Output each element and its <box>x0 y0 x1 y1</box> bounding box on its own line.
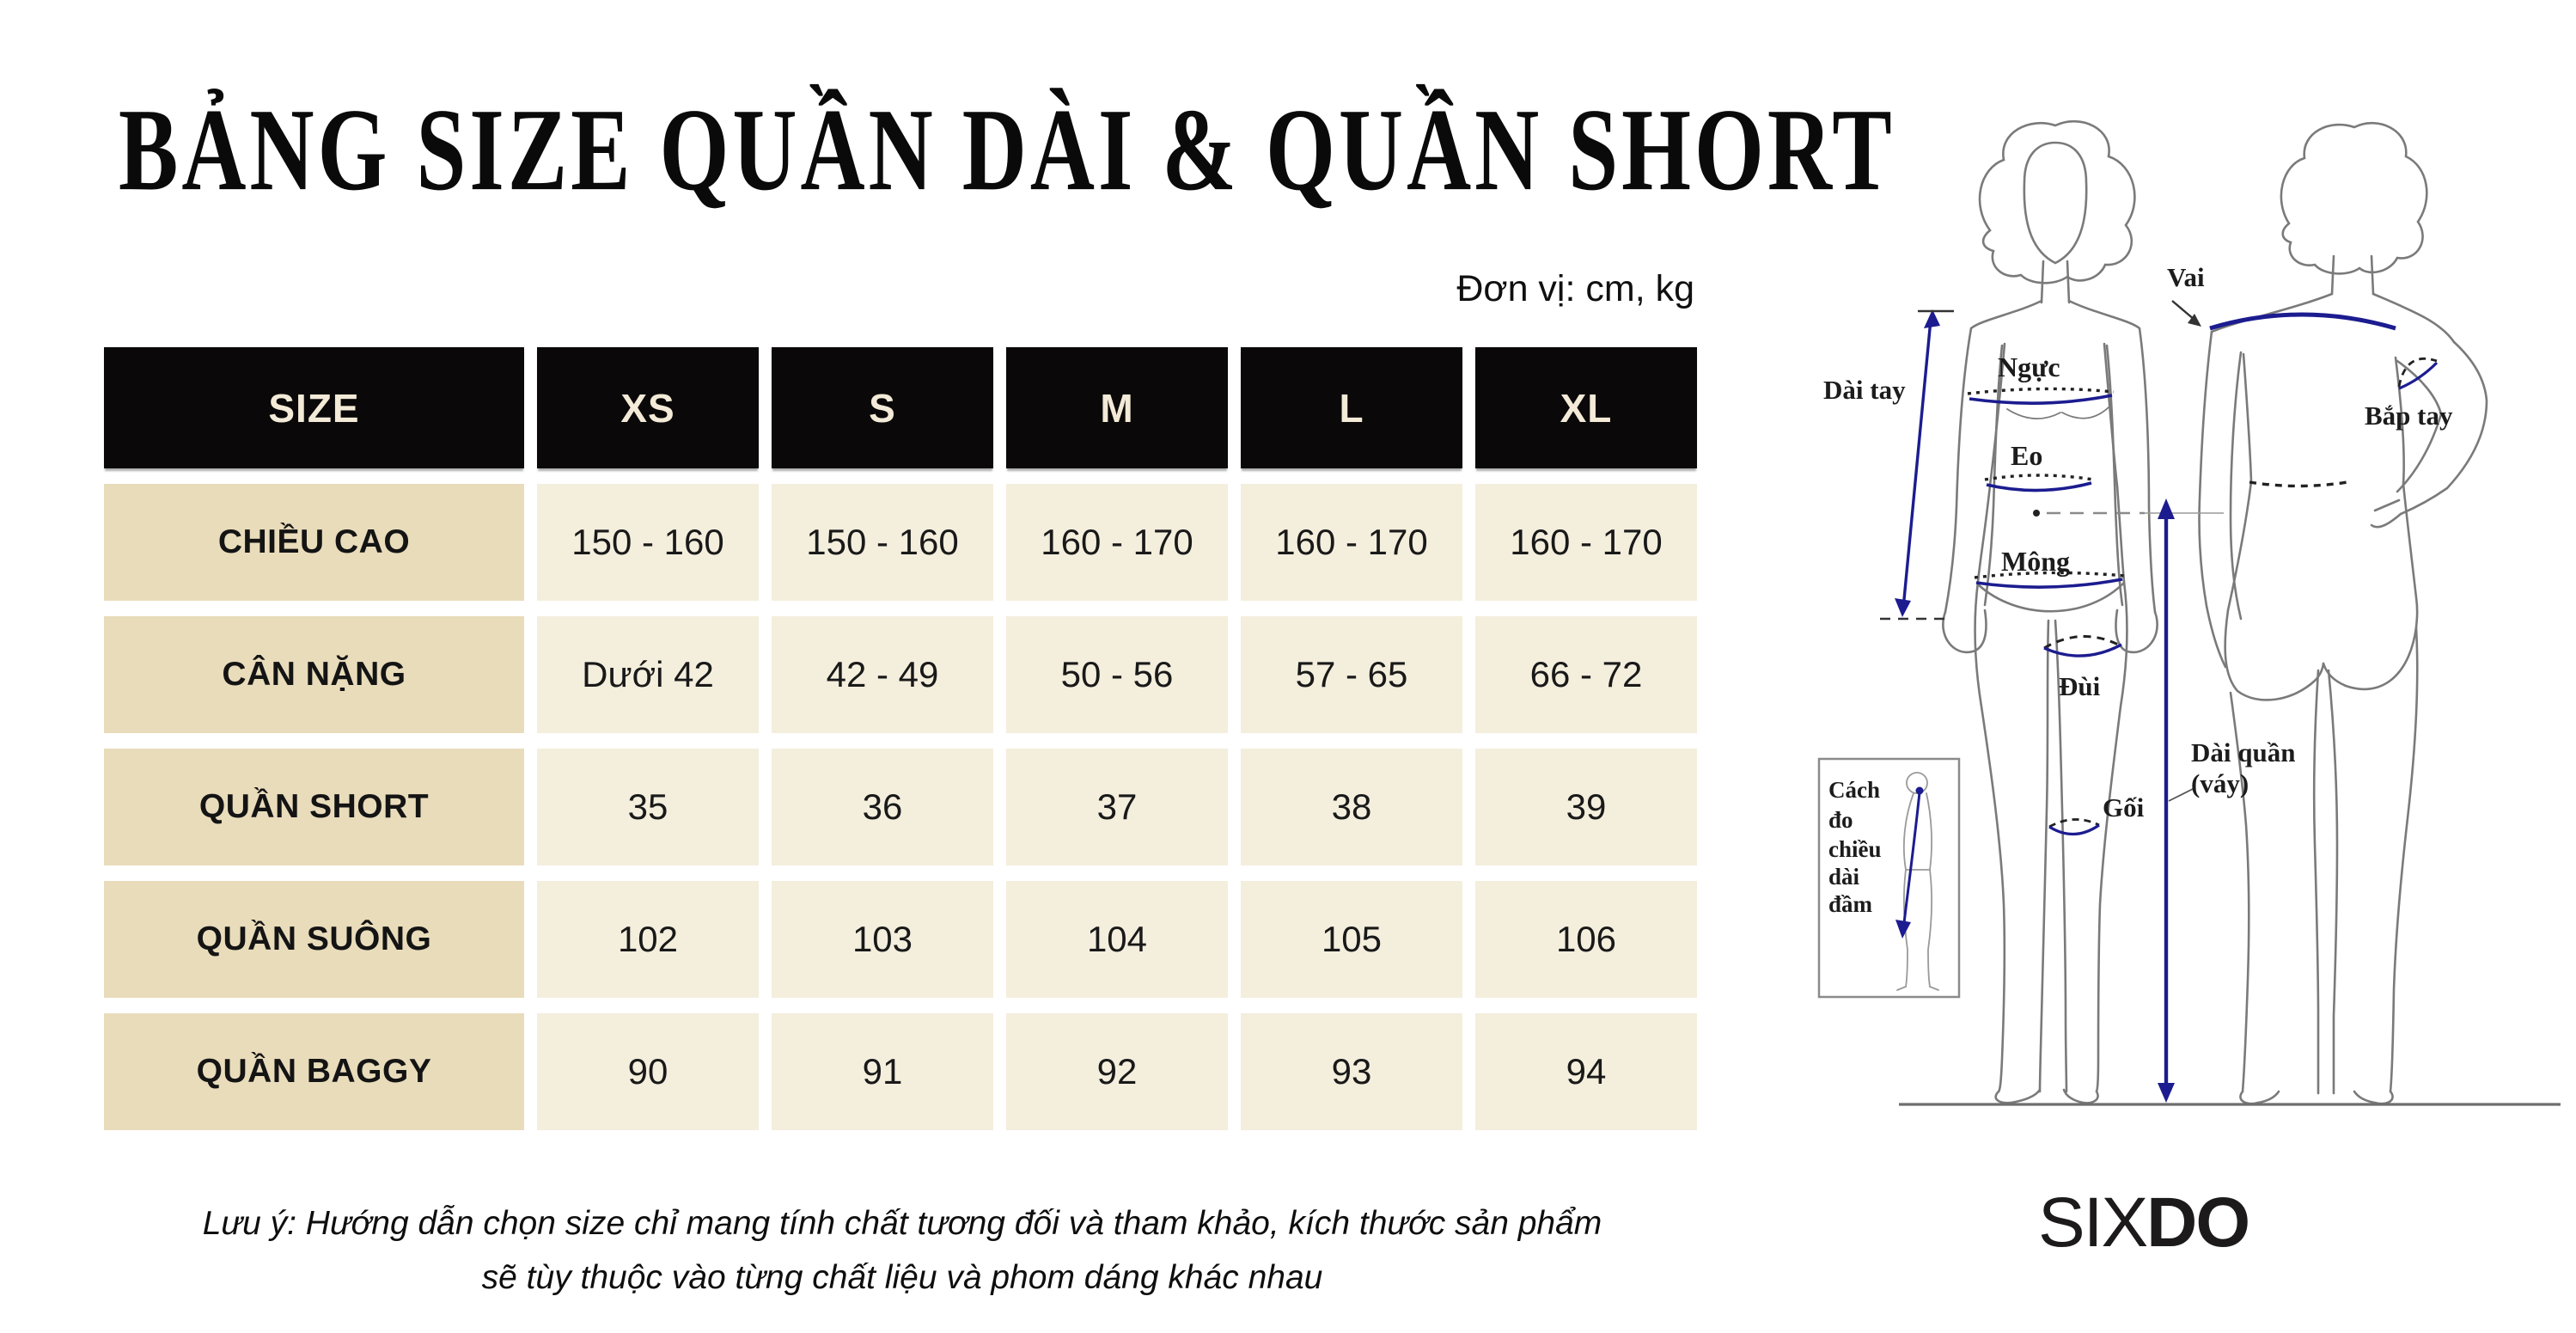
brand-logo-six: SIX <box>2038 1183 2146 1262</box>
size-table-value-cell: 35 <box>537 749 759 865</box>
size-table-header-col: L <box>1241 347 1462 468</box>
size-table-value-cell: 160 - 170 <box>1006 484 1228 601</box>
measurement-diagram: Cách đo chiều dài đầm Vai Dài tay Ngực E… <box>1760 103 2576 1268</box>
size-chart-page: BẢNG SIZE QUẦN DÀI & QUẦN SHORT Đơn vị: … <box>0 0 2576 1333</box>
footnote-line1: Lưu ý: Hướng dẫn chọn size chỉ mang tính… <box>129 1196 1676 1250</box>
size-table-value-cell: 160 - 170 <box>1241 484 1462 601</box>
size-table-value-cell: 39 <box>1475 749 1697 865</box>
front-figure-outline <box>1943 121 2157 1103</box>
size-table-value-cell: 90 <box>537 1013 759 1130</box>
label-dai-tay: Dài tay <box>1823 375 1906 405</box>
size-table-header-col: XS <box>537 347 759 468</box>
brand-logo: SIXDO <box>2038 1188 2249 1258</box>
measurement-marks <box>1880 301 2437 1103</box>
brand-logo-do: DO <box>2146 1183 2249 1262</box>
label-dai-quan-vay: (váy) <box>2191 768 2249 798</box>
size-table-value-cell: 66 - 72 <box>1475 616 1697 733</box>
inset-label-line1: Cách <box>1828 777 1880 803</box>
size-table: SIZEXSSMLXLCHIỀU CAO150 - 160150 - 16016… <box>104 347 1697 1130</box>
size-table-value-cell: 150 - 160 <box>772 484 993 601</box>
size-table-value-cell: 57 - 65 <box>1241 616 1462 733</box>
inset-label-line3: chiều <box>1828 836 1882 862</box>
label-vai: Vai <box>2167 262 2205 292</box>
size-table-value-cell: 91 <box>772 1013 993 1130</box>
size-table-value-cell: 150 - 160 <box>537 484 759 601</box>
size-table-header-size: SIZE <box>104 347 524 468</box>
size-table-value-cell: 105 <box>1241 881 1462 998</box>
footnote: Lưu ý: Hướng dẫn chọn size chỉ mang tính… <box>129 1196 1676 1305</box>
size-table-row-label: QUẦN SUÔNG <box>104 881 524 998</box>
label-nguc: Ngực <box>1998 352 2060 382</box>
size-table-value-cell: 42 - 49 <box>772 616 993 733</box>
size-table-row-label: QUẦN SHORT <box>104 749 524 865</box>
inset-label-line4: dài <box>1828 864 1860 890</box>
back-figure-outline <box>2199 123 2487 1104</box>
page-title: BẢNG SIZE QUẦN DÀI & QUẦN SHORT <box>119 83 1751 217</box>
footnote-line2: sẽ tùy thuộc vào từng chất liệu và phom … <box>129 1250 1676 1305</box>
label-eo: Eo <box>2011 440 2042 471</box>
unit-note: Đơn vị: cm, kg <box>104 268 1694 310</box>
size-table-value-cell: 36 <box>772 749 993 865</box>
size-table-row-label: CÂN NẶNG <box>104 616 524 733</box>
size-table-value-cell: 38 <box>1241 749 1462 865</box>
size-table-row-label: QUẦN BAGGY <box>104 1013 524 1130</box>
label-dai-quan: Dài quần <box>2191 737 2295 767</box>
label-bap-tay: Bắp tay <box>2365 401 2453 431</box>
size-table-value-cell: 50 - 56 <box>1006 616 1228 733</box>
inset-label-line5: đầm <box>1828 891 1873 917</box>
size-table-header-col: M <box>1006 347 1228 468</box>
inset-label-line2: đo <box>1828 807 1853 833</box>
size-table-header-col: S <box>772 347 993 468</box>
size-table-value-cell: Dưới 42 <box>537 616 759 733</box>
size-table-value-cell: 104 <box>1006 881 1228 998</box>
size-table-value-cell: 160 - 170 <box>1475 484 1697 601</box>
label-goi: Gối <box>2103 792 2145 822</box>
label-dui: Đùi <box>2059 671 2101 701</box>
label-mong: Mông <box>2001 546 2070 577</box>
size-table-value-cell: 94 <box>1475 1013 1697 1130</box>
size-table-row-label: CHIỀU CAO <box>104 484 524 601</box>
size-table-value-cell: 102 <box>537 881 759 998</box>
size-table-value-cell: 92 <box>1006 1013 1228 1130</box>
dress-length-inset: Cách đo chiều dài đầm <box>1819 759 1959 997</box>
size-table-value-cell: 37 <box>1006 749 1228 865</box>
size-table-value-cell: 93 <box>1241 1013 1462 1130</box>
size-table-value-cell: 103 <box>772 881 993 998</box>
size-table-value-cell: 106 <box>1475 881 1697 998</box>
size-table-header-col: XL <box>1475 347 1697 468</box>
